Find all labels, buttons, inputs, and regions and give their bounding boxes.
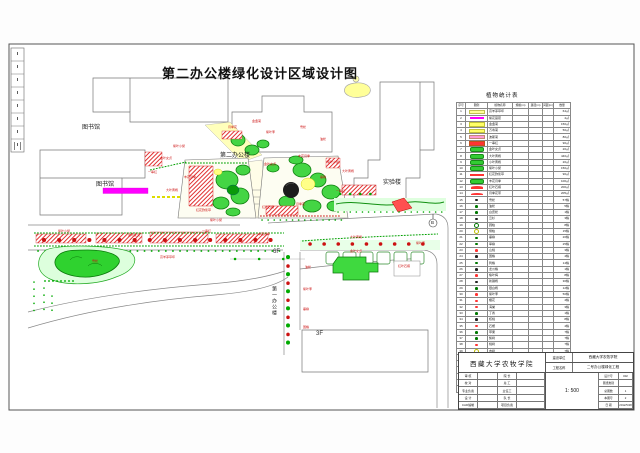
signature-cell <box>517 395 545 402</box>
signature-cell <box>478 380 498 387</box>
drawing-number-cell: 图纸类别 <box>599 380 619 387</box>
drawing-scale: 1: 500 <box>546 373 599 409</box>
drawing-number-cell: 2 <box>619 395 633 402</box>
legend-symbol <box>470 154 484 159</box>
signature-cell <box>478 373 498 380</box>
organization-name: 西藏大学农牧学院 <box>459 353 545 373</box>
signature-cell: 主任工 <box>498 387 517 394</box>
signature-cell: 设 计 <box>459 395 478 402</box>
signature-cell: 总 工 <box>498 380 517 387</box>
legend-symbol <box>469 122 485 127</box>
legend-symbol <box>469 129 485 134</box>
legend-symbol <box>470 179 484 184</box>
legend-symbol <box>470 174 484 176</box>
title-block-lower: 1: 500 设计号002图纸类别总图数1本图号2日 期2012/5/28 <box>546 373 633 409</box>
signature-cell: 院 长 <box>498 373 517 380</box>
project-row: 工程名称 二号办公楼绿化工程 <box>546 363 633 373</box>
legend-symbol <box>475 318 478 321</box>
drawing-number-cell: 设计号 <box>599 373 619 380</box>
magenta-strip <box>103 188 148 194</box>
drawing-number-cell: 2012/5/28 <box>619 402 633 409</box>
signature-cell <box>478 387 498 394</box>
legend-symbol <box>475 243 478 246</box>
signature-grid: 审 核院 长校 对总 工专业负责主任工设 计队 长CAD编制项目负责 <box>459 373 545 409</box>
legend-symbol <box>475 331 478 334</box>
legend-symbol <box>475 312 478 315</box>
dark-tree-feature <box>283 182 299 198</box>
plant-statistics-table: 序号图例植物名称规格(m)蓬径(m)间距(m)数量 1高羊茅草坪64㎡2紫花苜蓿… <box>456 102 571 393</box>
legend-symbol <box>475 293 478 296</box>
legend-symbol <box>475 237 478 240</box>
legend-symbol <box>475 325 478 328</box>
cad-drawing-sheet: 第二办公楼绿化设计区域设计图 植物统计表 第一办公楼 B 图书馆图书馆第二办公楼… <box>0 0 640 453</box>
legend-symbol <box>475 249 478 252</box>
builder-value: 西藏大学农牧学院 <box>573 353 633 362</box>
legend-symbol <box>475 300 478 303</box>
builder-label: 建设单位 <box>546 353 573 362</box>
signature-cell <box>517 402 545 409</box>
legend-symbol <box>470 160 484 165</box>
legend-symbol <box>475 205 478 208</box>
drawing-number-cell: 本图号 <box>599 395 619 402</box>
legend-symbol <box>475 344 478 347</box>
signature-strip <box>11 48 24 152</box>
legend-symbol <box>469 141 485 146</box>
section-marker-circle <box>429 219 437 227</box>
signature-cell <box>517 387 545 394</box>
legend-symbol <box>471 193 483 196</box>
title-block-right: 建设单位 西藏大学农牧学院 工程名称 二号办公楼绿化工程 1: 500 设计号0… <box>546 353 633 409</box>
legend-symbol <box>475 218 478 221</box>
project-value: 二号办公楼绿化工程 <box>573 363 633 372</box>
signature-cell <box>478 395 498 402</box>
builder-row: 建设单位 西藏大学农牧学院 <box>546 353 633 363</box>
drawing-number-cell <box>619 380 633 387</box>
signature-cell: CAD编制 <box>459 402 478 409</box>
legend-symbol <box>475 281 478 284</box>
signature-cell <box>517 373 545 380</box>
legend-symbol <box>474 229 479 234</box>
legend-symbol <box>469 110 485 115</box>
legend-symbol <box>471 186 483 189</box>
signature-cell: 队 长 <box>498 395 517 402</box>
legend-symbol <box>470 166 484 171</box>
signature-cell: 审 核 <box>459 373 478 380</box>
signature-cell: 项目负责 <box>498 402 517 409</box>
drawing-number-cell: 总图数 <box>599 387 619 394</box>
drawing-number-grid: 设计号002图纸类别总图数1本图号2日 期2012/5/28 <box>599 373 633 409</box>
legend-symbol <box>475 199 478 202</box>
legend-symbol <box>469 135 485 140</box>
title-block: 西藏大学农牧学院 审 核院 长校 对总 工专业负责主任工设 计队 长CAD编制项… <box>458 352 634 410</box>
legend-symbol <box>475 262 478 265</box>
title-block-left: 西藏大学农牧学院 审 核院 长校 对总 工专业负责主任工设 计队 长CAD编制项… <box>459 353 546 409</box>
legend-symbol <box>475 211 478 214</box>
legend-symbol <box>475 255 478 258</box>
legend-symbol <box>470 117 484 119</box>
signature-cell: 校 对 <box>459 380 478 387</box>
signature-cell: 专业负责 <box>459 387 478 394</box>
legend-symbol <box>475 337 478 340</box>
signature-cell <box>517 380 545 387</box>
legend-symbol <box>474 223 479 228</box>
legend-symbol <box>475 268 478 271</box>
drawing-number-cell: 1 <box>619 387 633 394</box>
legend-symbol <box>475 274 478 277</box>
legend-symbol <box>475 287 478 290</box>
signature-cell <box>478 402 498 409</box>
legend-symbol <box>470 147 484 152</box>
drawing-number-cell: 日 期 <box>599 402 619 409</box>
project-label: 工程名称 <box>546 363 573 372</box>
legend-symbol <box>475 306 478 309</box>
drawing-number-cell: 002 <box>619 373 633 380</box>
